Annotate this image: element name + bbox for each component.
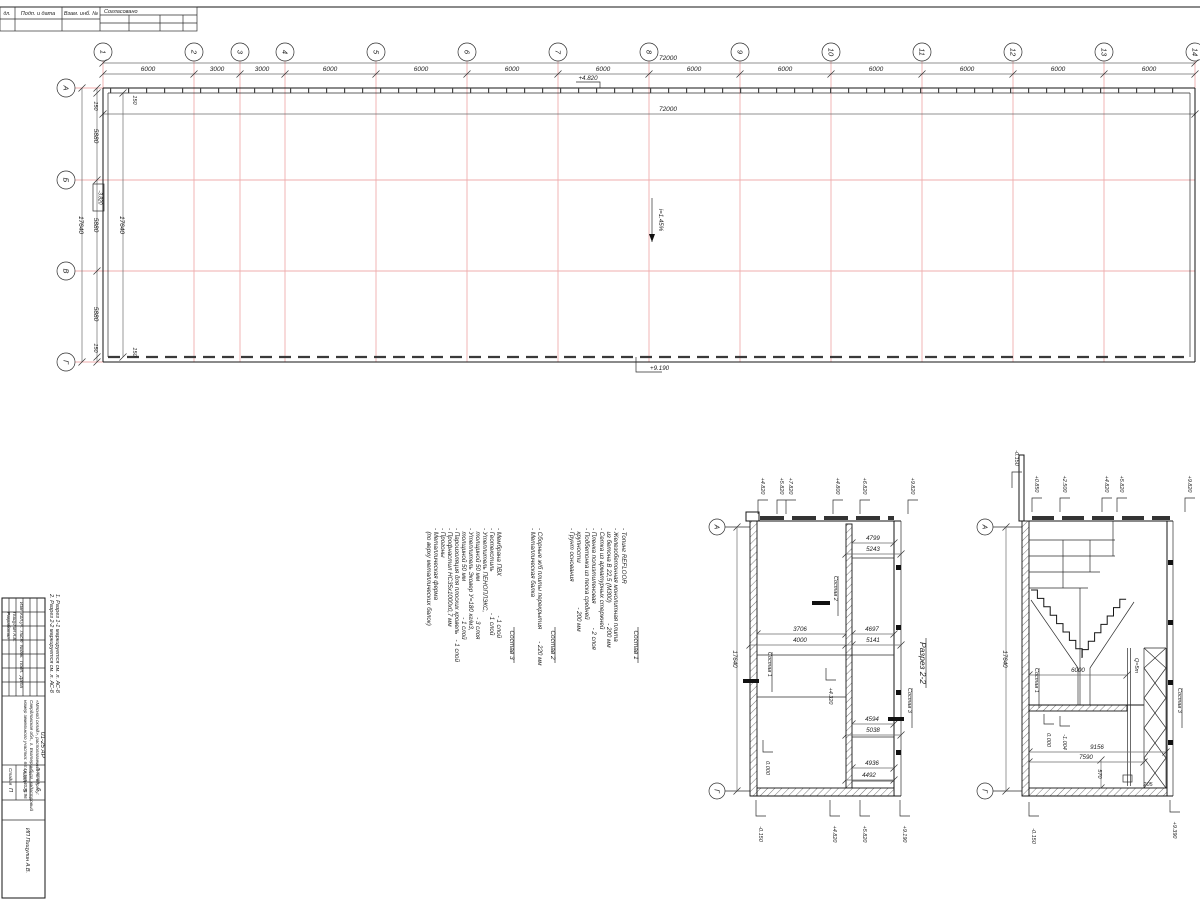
dim-label: 570	[1096, 769, 1102, 779]
stage-value: П	[7, 788, 13, 792]
dim-label: 6000	[414, 66, 429, 73]
elevation-mark: +4.820	[1103, 476, 1109, 494]
notes-line: - Железобетонная монолитная плита	[612, 528, 619, 642]
dim-label: 6000	[960, 66, 975, 73]
elevation-mark: -3.820	[97, 190, 103, 204]
elevation-mark: +7.820	[787, 478, 793, 496]
axis-label: 2	[190, 49, 199, 55]
axis-label: 8	[645, 50, 654, 55]
dim-label: 6000	[596, 66, 611, 73]
notes-line: - Пароизоляция для плоских кровель - 1 с…	[453, 528, 460, 662]
drawing-canvas: дл. Подп. и дата Взам. инб. № Согласован…	[0, 0, 1200, 900]
section-2-2: А Г 17640 4799 5243 3706 4697 4000 5141 …	[709, 478, 928, 844]
truss	[1144, 648, 1166, 788]
composition-ref: Состав 3	[1176, 688, 1182, 714]
approval-table: дл. Подп. и дата Взам. инб. № Согласован…	[0, 7, 197, 31]
dim-label: 5880	[92, 129, 99, 144]
elevation-mark: +6.820	[861, 478, 867, 496]
dim-label: 205	[1142, 782, 1153, 788]
elevation-mark: +4.800	[834, 478, 840, 496]
dim-label: 7590	[1079, 754, 1093, 761]
composition-ref: Состав 3	[906, 688, 912, 714]
axis-label: Г	[62, 360, 71, 365]
designer-name: Пищулин А.В.	[12, 612, 17, 642]
dim-label: 6000	[1142, 66, 1157, 73]
dim-offset: 150	[131, 347, 137, 357]
elevation-mark: -1.004	[1061, 734, 1067, 750]
axis-bubbles-left: А Б В Г	[57, 79, 75, 371]
notes-line: толщиной 50 мм - 3 слоя	[474, 528, 481, 640]
dim-label: 4000	[793, 637, 807, 644]
dim-label: 3706	[793, 626, 807, 633]
axis-label: Б	[62, 178, 71, 183]
composition-ref: Состав 1	[1033, 668, 1039, 693]
axis-label: 10	[827, 48, 836, 57]
drawing-sheet: дл. Подп. и дата Взам. инб. № Согласован…	[0, 0, 1200, 900]
dim-label: 5880	[92, 307, 99, 322]
elevation-mark: +5.820	[861, 826, 867, 844]
notes-line: - Сетка из арматурных стержней	[598, 528, 605, 630]
axis-label: Г	[981, 789, 988, 794]
dim-label: 17640	[1001, 650, 1008, 668]
elevation-mark: +5.820	[1118, 476, 1124, 494]
dim-label: 4697	[865, 626, 879, 633]
axis-label: 4	[281, 50, 290, 54]
elevation-mark: +2.500	[1061, 476, 1067, 494]
role-label: Разработал	[6, 612, 11, 639]
dim-label: 6000	[687, 66, 702, 73]
elevation-mark: +9.820	[909, 478, 915, 496]
axis-label: 5	[372, 50, 381, 55]
notes-line: - Металлическая балка	[529, 528, 536, 597]
dim-label: 150	[92, 343, 98, 353]
elevation-mark: +9.190	[901, 826, 907, 844]
notes-line: - Прогоны	[439, 528, 446, 558]
plan-annotations: +4.820 +9.190 i=1.45% -3.820	[93, 75, 670, 372]
sheet-note: 2. Разрез 2-2 маркируется см. л. АС-8	[48, 593, 54, 694]
approval-header: Согласовано	[104, 9, 138, 15]
axis-label: Г	[713, 789, 720, 794]
sheet-header: Лист	[22, 769, 27, 782]
notes-line: - Утеплитель ПЕНОПЛЭКС,	[481, 528, 488, 612]
approval-col1: дл.	[4, 11, 11, 17]
dim-label: 9156	[1090, 744, 1104, 751]
notes-line: из бетона В 22,5 (М300) - 200 мм	[605, 528, 612, 648]
elevation-mark: +9.390	[1171, 822, 1177, 840]
sheet-frame: дл. Подп. и дата Взам. инб. № Согласован…	[0, 7, 1200, 31]
axis-label: 9	[736, 50, 745, 55]
dim-label: 6000	[141, 66, 156, 73]
axis-label: 7	[554, 50, 563, 55]
composition-notes: Состав 1 - Топинг REFLOOR - Железобетонн…	[425, 528, 639, 666]
project-title-line: номер земельного участка: 66:41:5854020:…	[23, 700, 28, 799]
axis-label: А	[62, 84, 71, 90]
notes-line: - Пленка полиэтиленовая - 2 слоя	[590, 528, 597, 650]
s1-labels: Состав 1 Q=5т Состав 3	[1033, 658, 1182, 728]
notes-line: - Профнастил НС35х1000х0,7 мм	[446, 528, 453, 627]
dim-offset: 150	[131, 95, 137, 105]
axis-label: 13	[1100, 48, 1109, 57]
notes-line: - Мембрана ПВХ - 1 слой	[495, 528, 502, 639]
dim-left-total: 17640	[77, 216, 84, 234]
section-title: Разрез 2-2	[918, 642, 928, 684]
dim-label: 4492	[862, 772, 876, 779]
composition-ref: Состав 2	[832, 576, 838, 601]
dim-label: 4594	[865, 716, 879, 723]
section-1-1: А Г 17640 6000 9156 7590 570 2	[977, 450, 1195, 845]
axis-label: 12	[1009, 48, 1018, 57]
axis-label: А	[981, 524, 988, 530]
axis-label: 1	[99, 50, 108, 54]
axis-grid	[75, 61, 1195, 362]
organization-name: ИП Пищулин А.В.	[24, 828, 30, 873]
dim-label: 5141	[866, 637, 880, 644]
dim-label: 6000	[778, 66, 793, 73]
stage-header: Стадия	[8, 768, 13, 786]
elevation-mark: 0.000	[764, 761, 770, 776]
dim-label: 150	[92, 101, 98, 111]
notes-line: - Подбетонка из песка средней	[583, 528, 590, 620]
dim-label: 6000	[1071, 667, 1085, 674]
notes-line: - Топинг REFLOOR	[620, 528, 627, 584]
composition-ref: Состав 1	[766, 652, 772, 677]
revision-header: Изм Кол.уч. Лист №док. Подп. Дата	[19, 602, 24, 688]
notes-line: - Металлическая ферма	[432, 528, 439, 601]
dim-label: 17640	[731, 650, 738, 668]
sheets-header: Листов	[36, 766, 41, 784]
dim-total-inner: 72000	[659, 106, 677, 113]
plan-dim-labels: 6000 3000 3000 6000 6000 6000 6000 6000 …	[77, 55, 1157, 358]
elevation-mark: +4.820	[578, 75, 598, 82]
notes-line: - Сборные ж/б плиты перекрытия - 220 мм	[536, 528, 543, 666]
elevation-mark: -0.150	[1030, 828, 1036, 845]
elevation-mark: +9.820	[1186, 476, 1192, 494]
crane-capacity-label: Q=5т	[1133, 658, 1139, 674]
dim-label: 5243	[866, 546, 880, 553]
plan-dim-lines	[79, 60, 1199, 795]
notes-line: - Грунт основания	[568, 528, 575, 582]
dim-left-inner: 17640	[118, 216, 125, 234]
dim-label: 6000	[1051, 66, 1066, 73]
elevation-mark: -0.150	[1013, 450, 1019, 467]
dim-label: 5038	[866, 727, 880, 734]
axis-label: 3	[236, 50, 245, 55]
dim-label: 3000	[210, 66, 225, 73]
dim-label: 4936	[865, 760, 879, 767]
slope-label: i=1.45%	[657, 209, 664, 232]
elevation-mark: +5.820	[778, 478, 784, 496]
elevation-mark: -0.150	[757, 826, 763, 843]
dim-label: 6000	[869, 66, 884, 73]
title-block: 1. Разрез 1-1 маркируется см. л. АС-8 2.…	[2, 593, 60, 898]
s1-dims: 6000 9156 7590 570 205	[1029, 667, 1166, 788]
dim-label: 5880	[92, 218, 99, 233]
project-title-line: Свердловская обл., г. Екатеринбург, када…	[29, 700, 35, 811]
elevation-mark: +4.820	[759, 478, 765, 496]
elevation-mark: 0.000	[1045, 733, 1051, 748]
dim-label: 6000	[505, 66, 520, 73]
notes-line: крупности - 200 мм	[575, 528, 582, 632]
axis-label: 6	[463, 50, 472, 55]
dim-label: 6000	[323, 66, 338, 73]
notes-comp2: Состав 2 - Сборные ж/б плиты перекрытия …	[529, 528, 556, 666]
axis-label: А	[713, 524, 720, 530]
dim-total-top: 72000	[659, 55, 677, 62]
notes-line: толщиной 50 мм - 1 слой	[460, 528, 467, 640]
approval-col3: Взам. инб. №	[64, 11, 98, 17]
axis-label: 14	[1191, 48, 1200, 56]
notes-comp1: Состав 1 - Топинг REFLOOR - Железобетонн…	[568, 528, 639, 663]
elevation-mark: +4.820	[831, 826, 837, 844]
document-number: 01-25 АР	[39, 732, 46, 759]
axis-label: В	[62, 268, 71, 273]
approval-col2: Подп. и дата	[21, 11, 55, 17]
notes-comp3: Состав 3 - Мембрана ПВХ - 1 слой - Геоте…	[425, 528, 515, 663]
notes-line: (по верху металлических балок)	[425, 528, 432, 626]
elevation-mark: +4.320	[827, 688, 833, 706]
notes-line: - Геотекстиль - 1 слой	[488, 528, 495, 636]
axis-bubbles-top: 1 2 3 4 5 6 7 8 9 10 11 12 13 14	[94, 43, 1200, 61]
elevation-mark: +0.850	[1033, 476, 1039, 494]
axis-label: 11	[918, 48, 927, 56]
notes-line: - Утеплитель Эковер У=180 кг/м3,	[467, 528, 474, 631]
dim-label: 3000	[255, 66, 270, 73]
dim-label: 4799	[866, 535, 880, 542]
elevation-mark: +9.190	[650, 365, 670, 372]
